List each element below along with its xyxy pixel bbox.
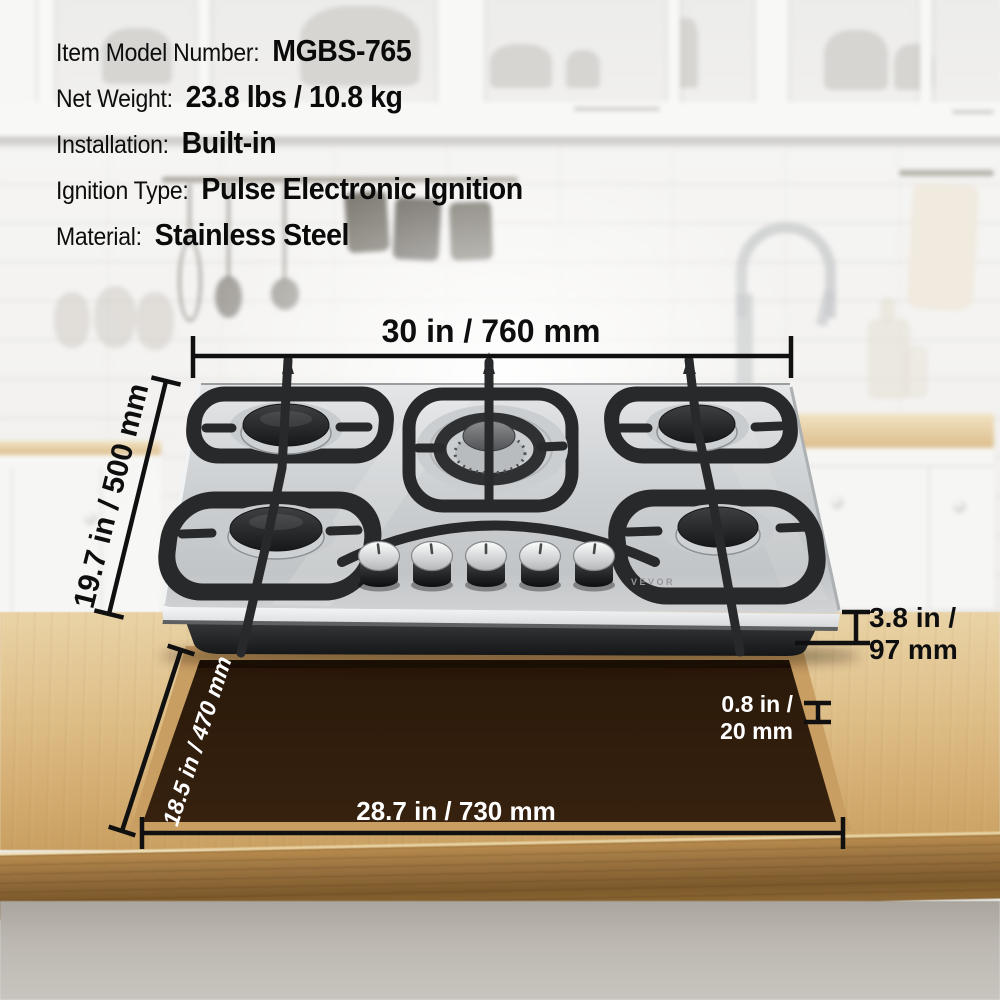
spec-row-weight: Net Weight: 23.8 lbs / 10.8 kg [56, 79, 523, 125]
spec-value: MGBS-765 [272, 33, 411, 69]
dim-label-cooktop-width: 30 in / 760 mm [241, 313, 741, 350]
knob-2 [411, 542, 453, 592]
spec-row-material: Material: Stainless Steel [56, 217, 523, 263]
dim-height-line1: 3.8 in / [869, 602, 958, 634]
knob-indicator [378, 545, 379, 554]
spec-label: Item Model Number: [56, 39, 259, 68]
spec-value: Pulse Electronic Ignition [201, 171, 522, 207]
spec-value: Built-in [182, 125, 277, 161]
grate-finger [182, 533, 212, 534]
knob-1 [358, 542, 400, 592]
dim-lip-line1: 0.8 in / [650, 691, 793, 718]
spec-label: Net Weight: [56, 85, 173, 114]
spec-value: Stainless Steel [155, 217, 349, 253]
knob-indicator [431, 545, 432, 554]
grate-finger [780, 527, 808, 528]
dim-label-lip: 0.8 in / 20 mm [650, 691, 793, 745]
knob-3 [465, 542, 507, 592]
spec-label: Installation: [56, 131, 169, 160]
spec-label: Material: [56, 223, 142, 252]
knob-indicator [594, 545, 595, 554]
dim-label-cutout-width: 28.7 in / 730 mm [206, 796, 706, 827]
product-spec-infographic: Item Model Number: MGBS-765 Net Weight: … [0, 0, 1000, 1000]
knob-indicator [540, 545, 541, 554]
spec-value: 23.8 lbs / 10.8 kg [186, 79, 403, 115]
dim-height-line2: 97 mm [869, 634, 958, 666]
grate-finger [541, 446, 563, 447]
knob-5 [573, 542, 615, 592]
spec-row-model: Item Model Number: MGBS-765 [56, 33, 523, 79]
spec-row-ignition: Ignition Type: Pulse Electronic Ignition [56, 171, 523, 217]
grate-finger [330, 530, 358, 531]
dim-lip-line2: 20 mm [650, 718, 793, 745]
gas-cooktop [160, 352, 860, 669]
knob-4 [519, 542, 561, 592]
spec-label: Ignition Type: [56, 177, 189, 206]
control-knobs [358, 542, 615, 592]
brand-logo: VEVOR [627, 577, 679, 587]
spec-row-installation: Installation: Built-in [56, 125, 523, 171]
product-spec-list: Item Model Number: MGBS-765 Net Weight: … [56, 33, 563, 263]
grate-finger [755, 426, 781, 427]
dim-label-cooktop-height: 3.8 in / 97 mm [869, 602, 958, 666]
grate-finger [627, 531, 658, 532]
